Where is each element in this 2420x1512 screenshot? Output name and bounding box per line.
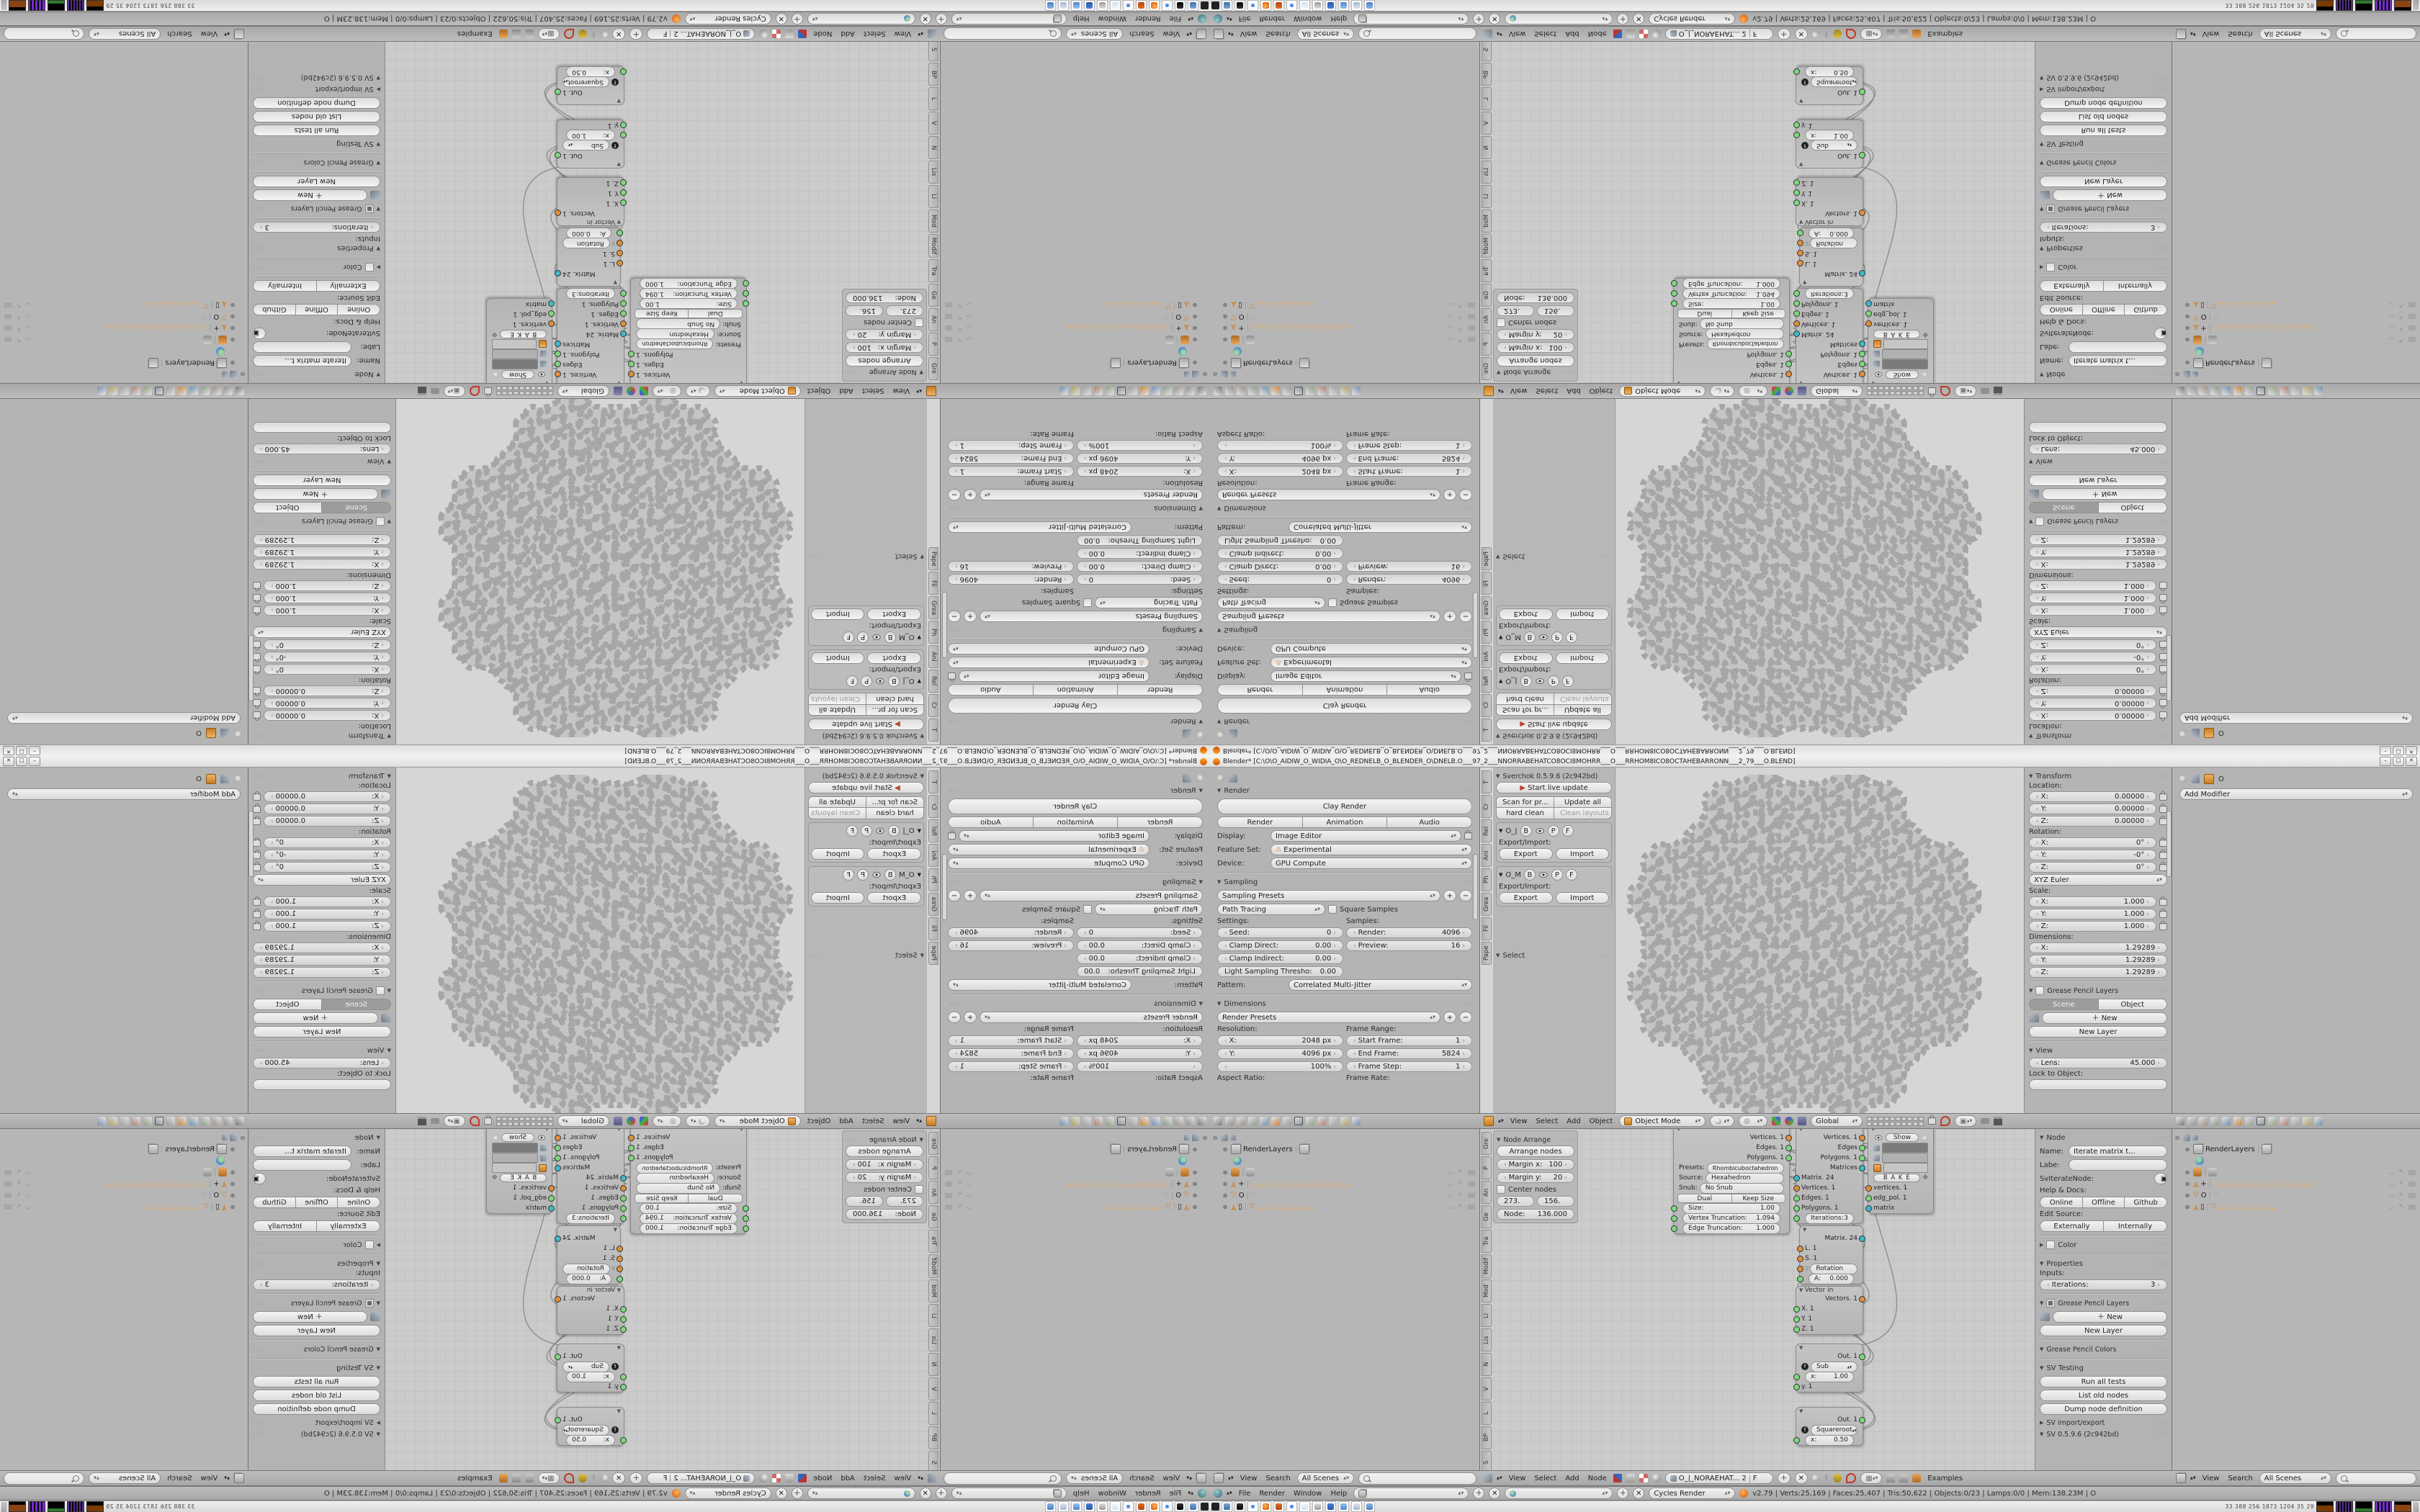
outliner-search-input[interactable] [944,28,1062,40]
socket-matrix[interactable] [548,300,555,307]
hide-icon[interactable]: ◡ [26,1180,32,1187]
p-toggle[interactable]: P [861,675,872,687]
gp-checkbox[interactable] [376,986,385,995]
properties-tab-scene[interactable] [1163,387,1172,395]
size-field[interactable]: Size:1.00 [1682,299,1780,310]
minimize-button[interactable]: – [29,746,40,755]
scene-selector[interactable]: ▲▼ [1505,1488,1613,1499]
tab-grea[interactable]: Grea [928,893,938,916]
view-panel-header[interactable]: ▼View:::: [2029,456,2167,467]
scene-selector[interactable]: ▲▼ [807,1488,915,1499]
menu-object[interactable]: Object [1587,1117,1615,1125]
render-restrict-icon[interactable] [945,1193,952,1198]
dump-node-definition-button[interactable]: Dump node definition [2040,97,2167,109]
feature-set-dropdown[interactable]: ⚠ Experimental▲▼ [1270,657,1472,668]
location-x-field[interactable]: X:0.00000 [264,710,391,721]
socket-x-in[interactable] [620,199,627,206]
move-icon[interactable]: ✥ [492,330,498,338]
render-restrict-icon[interactable] [4,338,12,343]
preset-add-button[interactable]: + [964,890,977,901]
taskbar-app-chrome[interactable] [1286,0,1297,11]
offline-button[interactable]: Offline [296,1197,338,1208]
tab-grea[interactable]: Grea [1482,893,1492,916]
menu-view[interactable]: View [199,30,220,38]
pin-icon[interactable] [233,729,241,737]
opengl-anim-icon[interactable] [418,387,426,395]
function-dropdown[interactable]: Sub▲▼ [563,140,609,151]
animation-button[interactable]: Animation [1303,816,1387,828]
snap-element-dropdown[interactable]: ▣▲▼ [1955,385,1976,397]
menu-view[interactable]: View [1507,30,1528,38]
properties-tab-world[interactable] [1152,1117,1160,1125]
tab-gre[interactable]: Gre [1482,1132,1492,1155]
properties-tab-physics[interactable] [1059,387,1068,395]
tab-an[interactable]: An [928,1181,938,1204]
hide-icon[interactable]: ◡ [1448,313,1454,320]
x-field[interactable]: x:0.50 [566,1435,615,1446]
render-restrict-icon[interactable] [945,1170,952,1175]
properties-tab-texture[interactable] [2291,387,2300,395]
node-editor[interactable]: GrePAnGeTraModifModLiLisNVLBPSLNBetG ▼No… [1480,1129,2172,1470]
select-restrict-icon[interactable]: ↖ [2398,302,2404,309]
outliner-tree[interactable]: ⊖⊕RenderLayers|⊕|◡↖⊕Y+|YYYYYYYYYYYYYY◡↖⊕… [1,300,246,380]
tab-ge[interactable]: Ge [928,1205,938,1228]
tab-p[interactable]: P [1482,1156,1492,1179]
sverchok-panel-header[interactable]: ▼Sverchok 0.5.9.6 (2c942bd) [808,770,924,782]
properties-tab-material[interactable] [2280,1117,2288,1125]
scene-delete-button[interactable]: ✕ [1633,13,1644,24]
socket-rot-in[interactable] [1797,240,1803,246]
add-modifier-dropdown[interactable]: Add Modifier▲▼ [7,788,241,800]
outliner-row-armature2[interactable]: ⊕Y▯|▽YYYYYYYY◡↖ [1211,1201,1478,1212]
device-dropdown[interactable]: GPU Compute▲▼ [1270,858,1472,869]
menu-help[interactable]: Help [1071,1490,1092,1498]
select-restrict-icon[interactable]: ↖ [1458,302,1464,309]
preset-remove-button[interactable]: − [1459,890,1472,901]
paste-icon[interactable] [1899,30,1908,38]
properties-tab-physics[interactable] [2314,1117,2323,1125]
snap-magnet-icon[interactable] [1846,29,1856,39]
render-restrict-icon[interactable] [4,1170,12,1175]
color-checkbox[interactable] [365,263,374,271]
hide-icon[interactable]: ◡ [967,336,972,343]
socket-z-in[interactable] [1793,179,1800,186]
maximize-button[interactable]: □ [16,746,27,755]
sv-version-panel-header[interactable]: ▼SV 0.5.9.6 (2c942bd):::: [2040,1428,2167,1440]
vertex-truncation-field[interactable]: Vertex Truncation:1.094 [640,289,738,300]
socket-y-in[interactable] [1793,1316,1800,1323]
pin-icon[interactable] [601,30,608,37]
frame-step-field[interactable]: Frame Step:1 [1346,440,1472,451]
display-mode-dropdown[interactable]: All Scenes▲▼ [1066,1472,1123,1484]
node-viewer-draw[interactable]: ▼ Show B A K E✥ vertices. 1 edg_pol. 1 m… [486,298,552,383]
socket-out[interactable] [555,1354,561,1360]
outliner-row-scene[interactable]: ⊖ [1,1132,246,1143]
pin-icon[interactable] [2179,729,2187,737]
tab-rel[interactable]: Rel [928,819,938,842]
node-panel-header[interactable]: ▼Node:::: [253,1132,380,1143]
properties-tab-modifiers[interactable] [2257,1117,2265,1125]
b-toggle2[interactable]: B [1524,869,1536,881]
update-all-button[interactable]: Update all [808,796,866,808]
view-panel-header[interactable]: ▼View:::: [253,1045,391,1056]
tab-t[interactable]: T [1482,719,1492,742]
location-y-field[interactable]: Y:0.00000 [264,804,391,814]
eye-toggle-icon[interactable] [1536,678,1543,684]
dim-y-field[interactable]: Y:1.29289 [253,546,391,557]
tab-cr[interactable]: Cr [928,694,938,717]
lock-icon[interactable] [253,864,261,871]
f-toggle[interactable]: F [846,675,858,687]
socket-etrunc-in[interactable] [743,280,749,287]
frame-step-field[interactable]: Frame Step:1 [1346,1061,1472,1072]
tree-unlink-button[interactable]: ✕ [1795,28,1808,40]
mode-dropdown[interactable]: Object Mode▲▼ [1619,385,1706,397]
menu-file[interactable]: File [1237,15,1253,23]
seed-field[interactable]: Seed:0 [1217,574,1343,585]
socket-polygons-out[interactable] [1785,1155,1792,1161]
outliner-row-armature[interactable]: ⊕Y+|YYYYYYYYYYYYYY◡↖ [2174,1178,2419,1189]
outliner-row-mesh-o[interactable]: ⊕▽O|▽◡↖ [942,1189,1209,1201]
outliner-row-mesh-o[interactable]: ⊕▽O|▽◡↖ [1,311,246,323]
socket-l-in[interactable] [1797,1246,1803,1252]
menu-search[interactable]: Search [2226,30,2254,38]
taskbar-app-chrome[interactable] [1162,1501,1173,1512]
fractal-mesh-object[interactable] [1617,775,1991,1113]
lock-to-object-dropdown[interactable] [2029,422,2167,433]
snap-mode-dropdown[interactable]: ▦▲▼ [538,28,560,40]
label-field[interactable] [253,1159,351,1171]
select-panel-header[interactable]: ▼Select:::: [808,950,924,961]
dim-x-field[interactable]: X:1.29289 [2029,942,2167,953]
sv-version-panel-header[interactable]: ▼SV 0.5.9.6 (2c942bd):::: [253,72,380,84]
gp-scene-tab[interactable]: Scene [322,502,392,513]
margin-x-field[interactable]: Margin x:100 [846,1159,923,1170]
github-button[interactable]: Github [2124,304,2167,315]
lock-to-object-dropdown[interactable] [2029,1079,2167,1090]
outliner-search-input[interactable] [2336,28,2416,40]
online-button[interactable]: Online [337,304,380,315]
render-panel-header[interactable]: ▼Render:::: [1217,716,1472,727]
properties-tab-texture[interactable] [1329,1117,1337,1125]
tab-gre[interactable]: Gre [928,1132,938,1155]
taskbar-apps[interactable] [1222,0,1375,11]
node-math-sub[interactable]: ▼ Out. 1 fSub▲▼ x:1.00 y. 1 [1796,120,1863,168]
window-titlebar[interactable]: Blender* [C:\O\O_AIDIW_O_WIDIA_O\O_REDNE… [0,744,1210,756]
tab-bp[interactable]: BP [928,63,938,86]
lock-icon[interactable] [948,672,956,680]
offline-button[interactable]: Offline [2083,1197,2125,1208]
outliner-row-renderlayers[interactable]: ⊕RenderLayers| [1211,357,1478,369]
location-y-field[interactable]: Y:0.00000 [2029,804,2156,814]
pin-icon[interactable] [1812,30,1819,37]
orientation-dropdown[interactable]: Global▲▼ [557,385,609,397]
idname-copy-button[interactable]: ▣ [2154,1173,2167,1184]
gp-new-layer-button[interactable]: New Layer [253,176,380,187]
socket-edgpol[interactable] [1865,310,1872,317]
select-restrict-icon[interactable]: ↖ [2398,313,2404,320]
properties-tab-constraints[interactable] [2245,1117,2254,1125]
iterations-field[interactable]: Iterations:3 [1805,289,1854,300]
select-restrict-icon[interactable]: ↖ [16,325,22,332]
socket-edgpol[interactable] [548,1195,555,1202]
gp-layers-panel-header[interactable]: ▼Grease Pencil Layers:::: [253,203,380,215]
render-preset-remove-button[interactable]: − [948,489,961,500]
socket-size-in[interactable] [1671,300,1677,307]
b-toggle[interactable]: B [1520,675,1532,687]
properties-tab-material[interactable] [1317,1117,1326,1125]
properties-tab-render[interactable] [2187,387,2196,395]
socket-in[interactable] [620,1215,627,1222]
gp-new-button[interactable]: ＋ New [253,488,378,500]
select-panel-header[interactable]: ▼Select:::: [1496,551,1612,562]
audio-button[interactable]: Audio [1386,816,1472,828]
scrollbar[interactable] [1473,854,1478,920]
tab-mod[interactable]: Mod [928,1279,938,1302]
outliner-row-armature[interactable]: ⊕Y+|YYYYYYYYYYYYYY◡↖ [1211,1178,1478,1189]
node-math-squareroot[interactable]: ▼ Out. 1 fSquareroot▲▼ x:0.50 [1796,66,1863,105]
select-restrict-icon[interactable]: ↖ [956,336,962,343]
taskbar-app-volume[interactable] [1097,1501,1108,1512]
editor-type-icon[interactable] [1196,29,1206,39]
close-button[interactable]: ✕ [2406,746,2417,755]
scene-add-button[interactable]: ＋ [1617,13,1628,24]
tab-l[interactable]: L [1482,1402,1492,1425]
socket-out[interactable] [555,371,561,377]
menu-view[interactable]: View [891,387,913,395]
socket-out[interactable] [1859,341,1865,347]
properties-tab-physics[interactable] [2314,387,2323,395]
menu-select[interactable]: Select [1532,1475,1559,1482]
outliner-row-renderlayers[interactable]: ⊕RenderLayers| [942,1143,1209,1155]
properties-tab-editor-select[interactable] [236,387,244,395]
snap-icon[interactable] [578,1474,587,1482]
show-desktop-button[interactable] [2414,1,2419,11]
taskbar-app-viewer[interactable] [1071,1501,1082,1512]
outliner-row-world[interactable] [1,346,246,357]
taskbar-app-window[interactable] [1045,1501,1056,1512]
tab-n[interactable]: N [1482,136,1492,159]
node-math-sub[interactable]: ▼ Out. 1 fSub▲▼ x:1.00 y. 1 [1796,1344,1863,1392]
node-iterate-matrix[interactable]: ▼ Vertices. 1 Edges Polygons. 1 Matrices… [1796,288,1863,383]
presets-dropdown[interactable]: Rhombicuboctahedron [636,339,713,350]
function-dropdown[interactable]: Sub▲▼ [1811,1362,1857,1372]
x-field[interactable]: x:0.50 [1805,1435,1854,1446]
sv-testing-panel-header[interactable]: ▼SV Testing:::: [253,1362,380,1374]
gp-scene-tab[interactable]: Scene [322,999,392,1010]
location-y-field[interactable]: Y:0.00000 [2029,698,2156,708]
socket-x-in[interactable] [620,1437,627,1444]
arrange-nodes-button[interactable]: Arrange nodes [1497,355,1574,366]
sampling-presets-dropdown[interactable]: Sampling Presets▲▼ [1217,611,1440,622]
shader-tree-icon[interactable] [798,30,807,38]
node-math-squareroot[interactable]: ▼ Out. 1 fSquareroot▲▼ x:0.50 [557,1407,624,1446]
scan-button[interactable]: Scan for pr... [866,704,924,716]
lock-icon[interactable] [253,666,261,673]
outliner-search-input[interactable] [2336,1472,2416,1485]
tool-breadcrumb-icon[interactable] [1229,774,1237,783]
socket-x-in[interactable] [1793,199,1800,206]
sv-testing-panel-header[interactable]: ▼SV Testing:::: [2040,138,2167,150]
margin-y-field[interactable]: Margin y:20 [846,329,923,340]
properties-tab-editor-select[interactable] [1198,1117,1206,1125]
tab-pape[interactable]: Pape [1482,547,1492,570]
socket-s-in[interactable] [617,1256,623,1262]
socket-vectors-out[interactable] [555,210,561,216]
edge-truncation-field[interactable]: Edge Truncation:1.000 [1682,279,1780,289]
render-restrict-icon[interactable] [4,1205,12,1210]
render-restrict-icon[interactable] [945,1205,952,1210]
import-button[interactable]: Import [1556,848,1610,860]
select-restrict-icon[interactable]: ↖ [956,325,962,332]
properties-tab-material[interactable] [2280,387,2288,395]
p-toggle2[interactable]: P [857,631,869,643]
edge-color-swatch[interactable] [1882,1153,1928,1163]
editor-type-icon[interactable] [2176,1473,2186,1483]
properties-tab-render-layers[interactable] [1237,1117,1245,1125]
preset-add-button[interactable]: + [1443,611,1456,622]
pencil-icon[interactable] [2040,191,2050,199]
pencil-icon[interactable] [381,490,391,498]
outliner-row-world[interactable] [1211,1155,1478,1166]
gp-new-button[interactable]: ＋ New [2053,1311,2167,1323]
render-restrict-icon[interactable] [1468,1193,1475,1198]
pivot-dropdown[interactable]: ◎▲▼ [653,385,681,397]
select-restrict-icon[interactable]: ↖ [1458,1192,1464,1199]
eye-icon[interactable] [1875,1135,1882,1140]
viewport-3d[interactable]: TCrRelAniPhGreaFilPape ▼Sverchok 0.5.9.6… [248,399,940,744]
node-editor[interactable]: GrePAnGeTraModifModLiLisNVLBPSLNBetG ▼No… [248,1129,940,1470]
paste-icon[interactable] [1899,1474,1908,1482]
snap-magnet-icon[interactable] [564,29,574,39]
screen-layout-selector[interactable]: ▲▼ [951,1488,1067,1499]
node-generator[interactable]: ▼ Vertices. 1 Edges. 1 Polygons. 1 Prese… [1673,1129,1790,1234]
resolution-y-field[interactable]: Y:4096 px [1217,453,1343,464]
tab-mod[interactable]: Mod [1482,1279,1492,1302]
label-field[interactable] [253,341,351,353]
edge-truncation-field[interactable]: Edge Truncation:1.000 [1682,1223,1780,1234]
socket-out[interactable] [1859,152,1865,158]
properties-tab-modifiers[interactable] [1117,387,1126,395]
manipulator-rotate-icon[interactable] [627,1117,635,1125]
properties-tab-editor-select[interactable] [2176,387,2184,395]
f-toggle[interactable]: F [1562,675,1574,687]
close-button[interactable]: ✕ [3,757,14,766]
b-toggle[interactable]: B [888,675,900,687]
select-restrict-icon[interactable]: ↖ [16,302,22,309]
idname-copy-button[interactable]: ▣ [2154,328,2167,339]
node-matrix-in[interactable]: ▼ Matrix. 24 L. 1 S. 1 ▽Rotation A:0.000 [1799,1225,1863,1284]
editor-type-icon[interactable] [1484,30,1492,38]
start-frame-field[interactable]: Start Frame:1 [1346,466,1472,477]
node-arrange-header[interactable]: ▼Node Arrange:::: [1497,1134,1574,1146]
manipulator-scale-icon[interactable] [614,1117,622,1125]
socket-rot-in[interactable] [1797,1266,1803,1272]
socket-s-in[interactable] [1797,1256,1803,1262]
pin-icon[interactable] [1217,775,1224,782]
texture-tree-icon[interactable] [1639,30,1648,38]
render-restrict-icon[interactable] [2408,1182,2416,1187]
tool-breadcrumb-icon[interactable] [1183,729,1191,738]
socket-x-in[interactable] [1793,1374,1800,1380]
socket-in[interactable] [1793,1195,1800,1202]
idname-copy-button[interactable]: ▣ [253,328,266,339]
taskbar-app-floppy64[interactable] [1084,0,1095,11]
sverchok-tree-icon[interactable] [759,30,768,38]
f-toggle2[interactable]: F [1566,631,1577,643]
frame-step-field[interactable]: Frame Step:1 [948,440,1074,451]
gp-object-tab[interactable]: Object [253,502,322,513]
properties-tab-world[interactable] [1260,1117,1268,1125]
socket-y-in[interactable] [1793,1384,1800,1390]
display-mode-dropdown[interactable]: All Scenes▲▼ [2259,1472,2331,1484]
internally-button[interactable]: Internally [253,1220,316,1232]
render-button[interactable]: Render [1217,684,1303,696]
render-engine-selector[interactable]: Cycles Render▲▼ [1649,1488,1735,1499]
audio-button[interactable]: Audio [948,816,1034,828]
display-dropdown[interactable]: Image Editor▲▼ [959,670,1149,682]
socket-a-in[interactable] [1797,1276,1803,1282]
socket-x-in[interactable] [1793,132,1800,138]
socket-x-in[interactable] [1793,1306,1800,1313]
tab-ph[interactable]: Ph [928,868,938,891]
outliner-row-mesh-o[interactable]: ⊕▽O|▽◡↖ [1,1189,246,1201]
lens-field[interactable]: Lens:45.000 [2029,444,2167,454]
menu-file[interactable]: File [1168,15,1184,23]
node-vector-in[interactable]: ▼ Vector in Vectors. 1 X. 1 Y. 1 Z. 1 [557,177,624,226]
taskbar-app-notepad[interactable] [1299,1501,1310,1512]
tab-t[interactable]: T [1482,770,1492,793]
start-button[interactable] [1211,1503,1219,1511]
socket-matrix[interactable] [548,1205,555,1212]
outliner-row-armature2[interactable]: ⊕Y▯|▽YYYYYYYY◡↖ [2174,1201,2419,1212]
node-tree-selector[interactable]: O_|_NORAEHAT... 2 F [647,1472,755,1484]
properties-tab-strip[interactable] [1214,1117,1361,1125]
menu-select[interactable]: Select [860,1117,887,1125]
clamp-indirect-field[interactable]: Clamp Indirect:0.00 [1077,548,1203,559]
menu-object[interactable]: Object [805,1117,833,1125]
presets-dropdown[interactable]: Rhombicuboctahedron [1707,1163,1784,1174]
lock-icon[interactable] [1464,832,1472,840]
lock-icon[interactable] [253,818,261,825]
run-all-tests-button[interactable]: Run all tests [253,125,380,136]
taskbar-app-display[interactable] [1188,1501,1198,1512]
tool-breadcrumb-icon[interactable] [1183,774,1191,783]
tab-ph[interactable]: Ph [1482,621,1492,644]
outliner-row-mesh-object[interactable]: ⊕|◡↖ [942,334,1209,346]
menu-view[interactable]: View [892,30,914,38]
menu-search[interactable]: Search [1127,1475,1156,1482]
opengl-anim-icon[interactable] [418,1117,426,1125]
show-button[interactable]: Show [1886,370,1919,379]
render-presets-dropdown[interactable]: Render Presets▲▼ [980,1012,1203,1023]
shade-icon[interactable] [1921,371,1928,378]
tab-v[interactable]: V [928,1377,938,1400]
clean-layouts-button[interactable]: Clean layouts [808,808,866,819]
import-button2[interactable]: Import [1556,892,1610,904]
light-sampling-field[interactable]: Light Sampling Thresho:0.00 [1217,966,1343,977]
online-button[interactable]: Online [2040,1197,2083,1208]
keep-size-button[interactable]: Keep Size [635,310,689,319]
center-nodes-checkbox[interactable] [915,318,923,327]
socket-in[interactable] [620,1195,627,1202]
lock-icon[interactable] [948,832,956,840]
properties-tab-data[interactable] [2268,1117,2277,1125]
node-size-field[interactable]: Node:136.000 [1497,1209,1574,1220]
minimize-button[interactable]: – [29,757,40,766]
properties-tab-object[interactable] [1271,387,1280,395]
lens-field[interactable]: Lens:45.000 [2029,1058,2167,1068]
